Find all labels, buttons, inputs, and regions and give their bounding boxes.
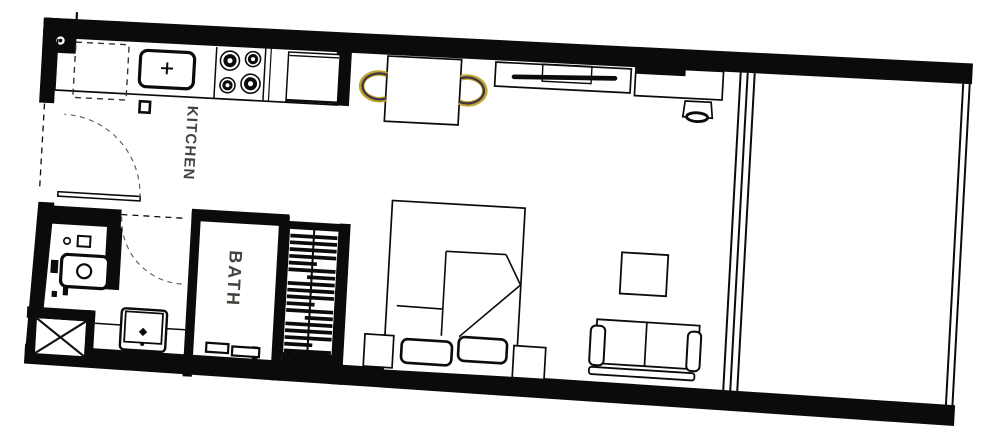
svg-text:BATH: BATH [223, 250, 246, 308]
